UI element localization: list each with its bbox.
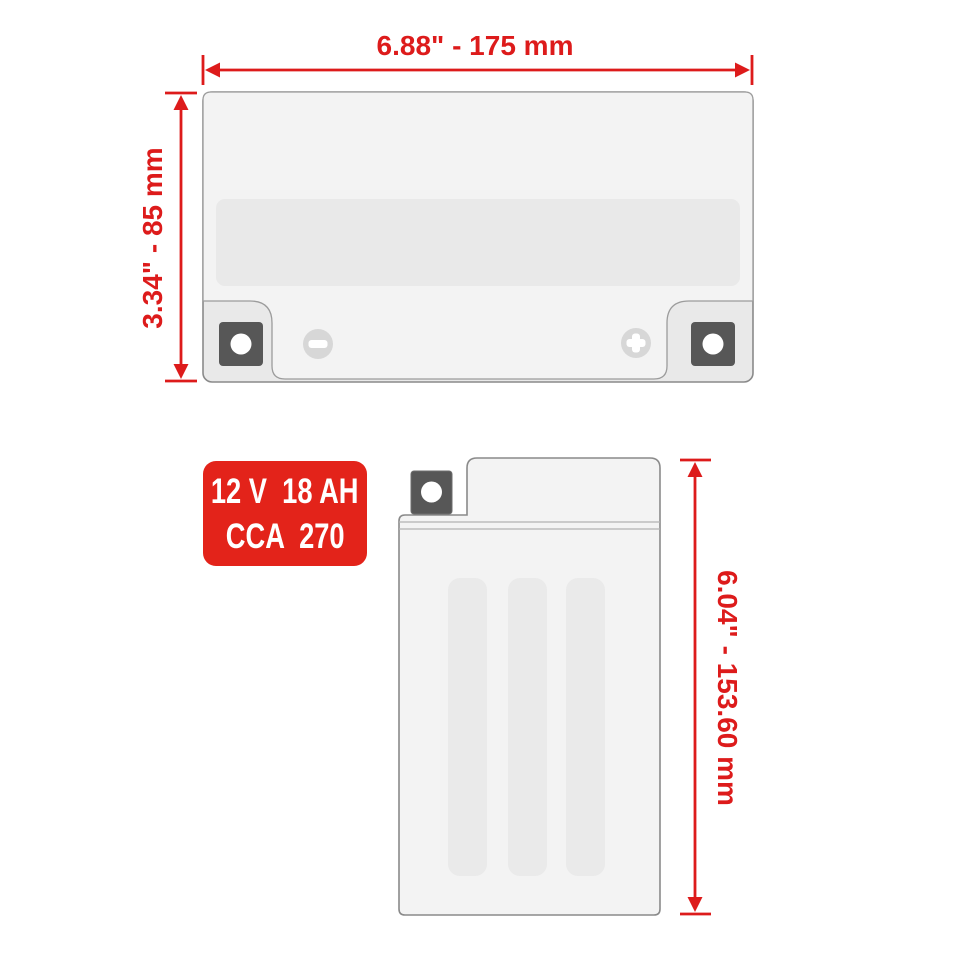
arrowhead-down-icon xyxy=(688,897,703,912)
battery-front-label-area xyxy=(216,199,740,286)
battery-dimensions-diagram: 6.88" - 175 mm 3.34" - 85 mm 6.04" - 153… xyxy=(0,0,960,960)
front-right-terminal xyxy=(691,322,735,366)
battery-side-view xyxy=(399,458,660,915)
minus-bar xyxy=(309,340,328,348)
front-width-dimension-label: 6.88" - 175 mm xyxy=(377,30,574,62)
battery-front-view xyxy=(203,92,753,382)
arrowhead-right-icon xyxy=(735,63,750,78)
arrowhead-up-icon xyxy=(688,462,703,477)
arrowhead-left-icon xyxy=(205,63,220,78)
plus-bar-vertical xyxy=(632,334,640,353)
front-left-terminal xyxy=(219,322,263,366)
arrowhead-down-icon xyxy=(174,364,189,379)
side-terminal xyxy=(411,471,452,514)
minus-icon xyxy=(303,329,333,359)
arrowhead-up-icon xyxy=(174,95,189,110)
spec-badge-voltage-capacity: 12 V 18 AH xyxy=(211,469,359,514)
front-height-dimension-label: 3.34" - 85 mm xyxy=(137,147,169,328)
front-height-dimension xyxy=(165,93,197,381)
terminal-bolt-icon xyxy=(421,482,442,503)
terminal-bolt-icon xyxy=(231,334,252,355)
side-rib xyxy=(448,578,487,876)
side-rib xyxy=(508,578,547,876)
spec-badge: 12 V 18 AH CCA 270 xyxy=(203,461,367,566)
side-rib xyxy=(566,578,605,876)
side-height-dimension xyxy=(680,460,711,914)
plus-icon xyxy=(621,328,651,358)
spec-badge-cca: CCA 270 xyxy=(226,514,345,559)
terminal-bolt-icon xyxy=(703,334,724,355)
side-height-dimension-label: 6.04" - 153.60 mm xyxy=(711,570,743,806)
diagram-canvas xyxy=(0,0,960,960)
